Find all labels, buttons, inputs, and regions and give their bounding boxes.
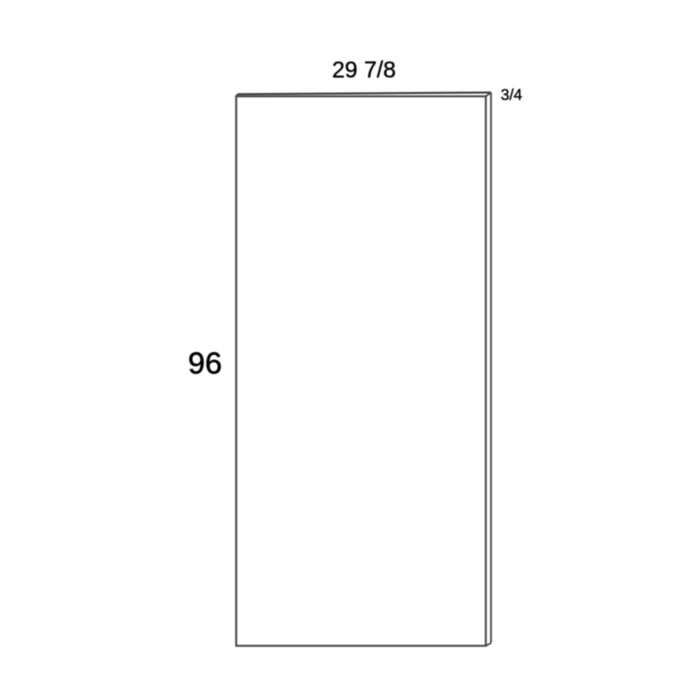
svg-text:3/4: 3/4 (501, 87, 523, 104)
svg-text:29 7/8: 29 7/8 (332, 57, 396, 83)
svg-text:96: 96 (188, 347, 222, 381)
